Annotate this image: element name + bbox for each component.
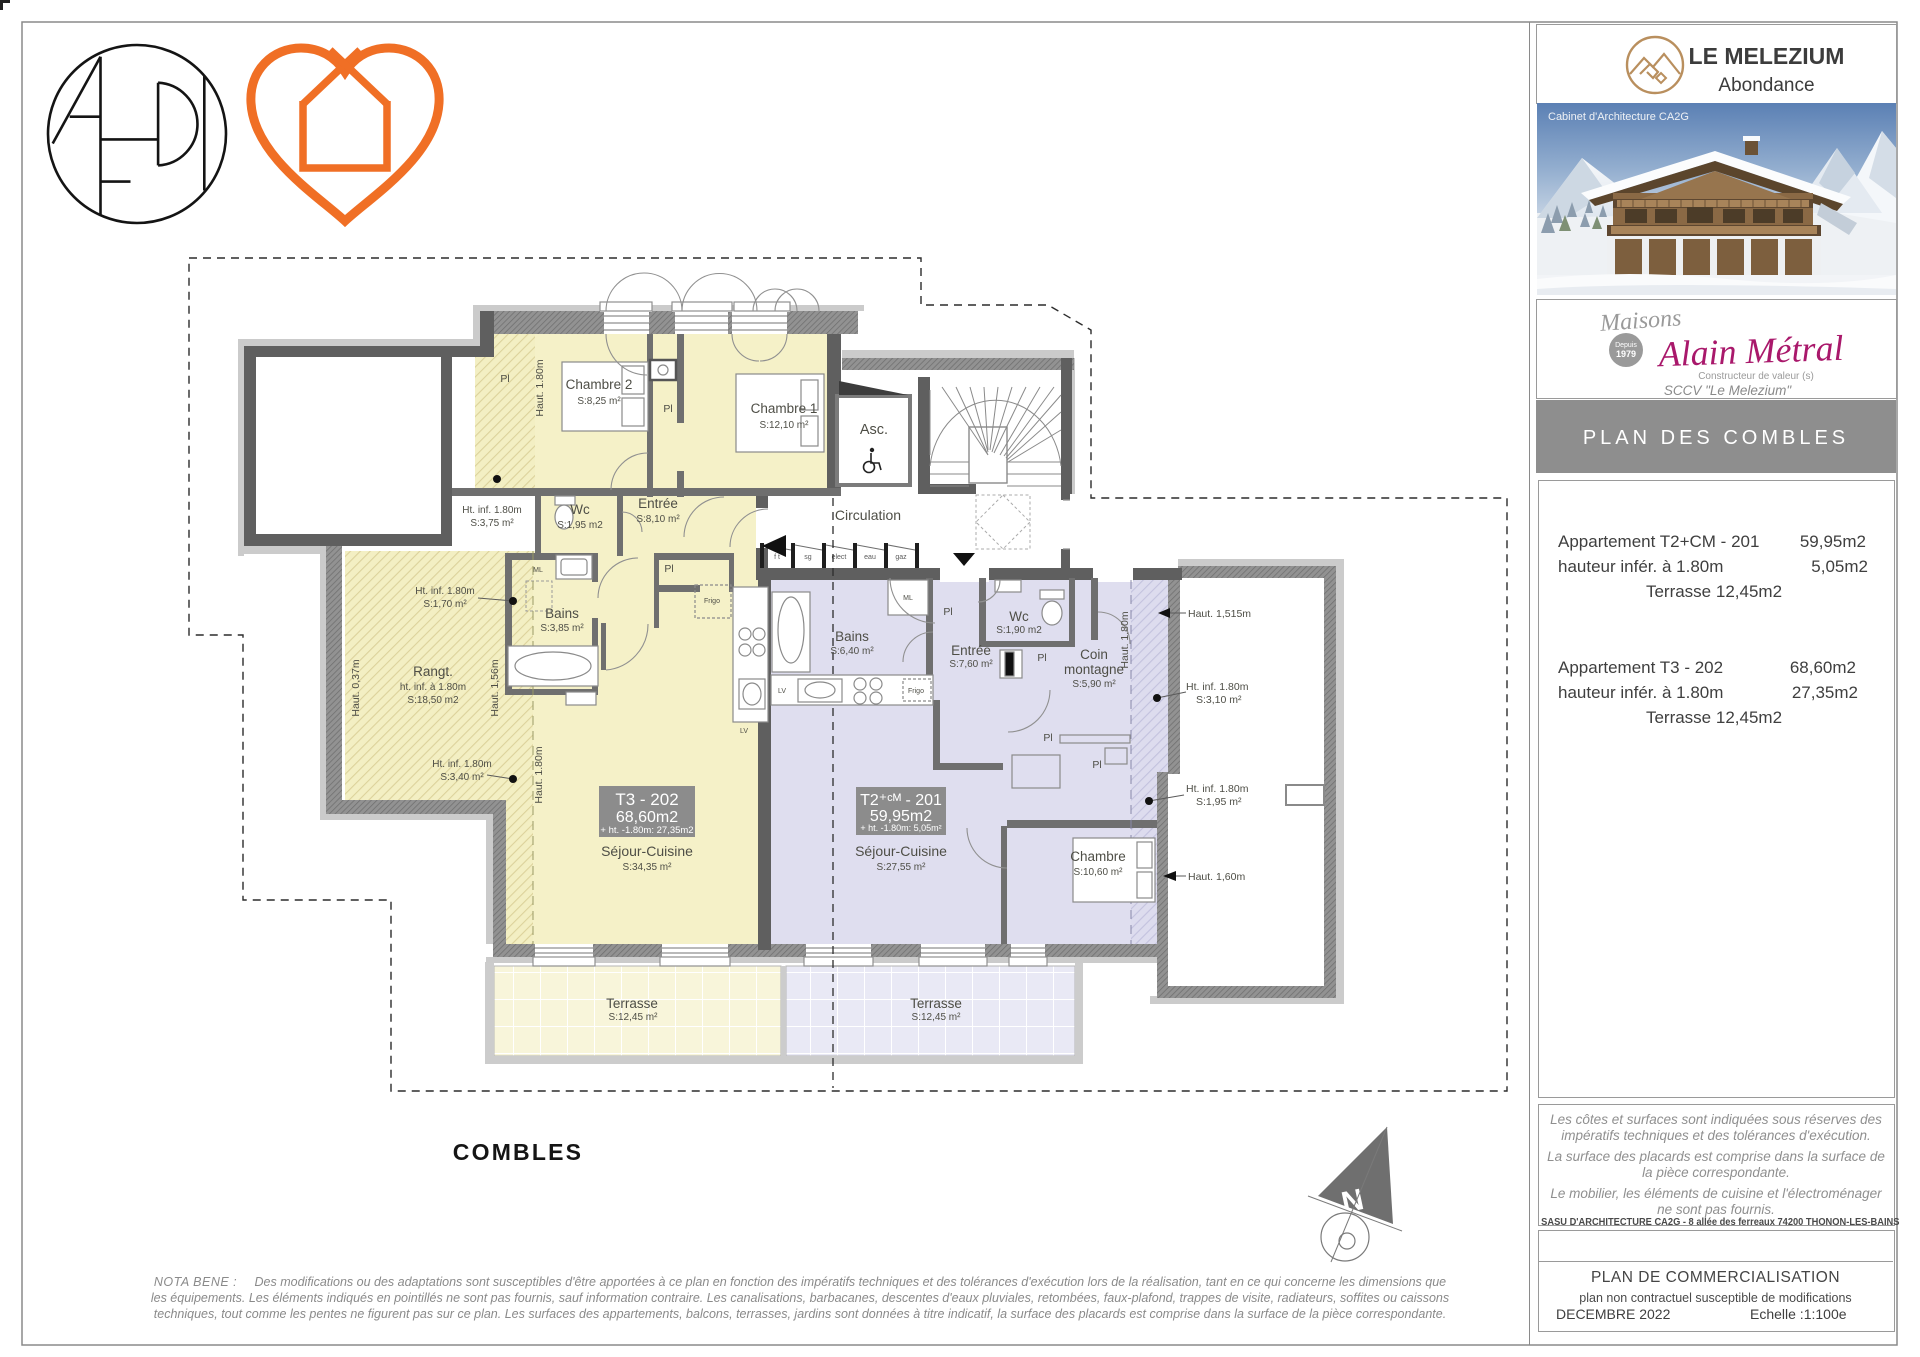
svg-text:Asc.: Asc.	[860, 422, 888, 438]
svg-text:elect: elect	[832, 554, 847, 561]
svg-text:S:12,45 m²: S:12,45 m²	[609, 1012, 659, 1023]
svg-text:Chambre 1: Chambre 1	[751, 401, 818, 416]
svg-text:Chambre: Chambre	[1070, 849, 1126, 864]
svg-text:Terrasse: Terrasse	[606, 996, 658, 1011]
svg-text:T2⁺ᶜᴹ - 201: T2⁺ᶜᴹ - 201	[860, 792, 942, 809]
svg-text:Entrée: Entrée	[638, 496, 678, 511]
svg-text:S:3,85 m²: S:3,85 m²	[540, 623, 584, 634]
svg-text:Haut. 0,37m: Haut. 0,37m	[350, 659, 362, 716]
svg-text:LV: LV	[740, 728, 748, 735]
svg-text:S:12,10 m²: S:12,10 m²	[760, 420, 810, 431]
svg-text:LV: LV	[778, 688, 786, 695]
svg-text:Circulation: Circulation	[835, 507, 901, 523]
svg-text:S:27,55 m²: S:27,55 m²	[877, 862, 927, 873]
svg-text:S:7,60 m²: S:7,60 m²	[949, 659, 993, 670]
svg-text:Haut. 1,56m: Haut. 1,56m	[489, 659, 501, 716]
svg-text:Frigo: Frigo	[704, 598, 720, 605]
svg-text:S:3,75 m²: S:3,75 m²	[470, 518, 514, 529]
svg-text:T3 - 202: T3 - 202	[615, 790, 678, 809]
svg-text:Cabinet d'Architecture CA2G: Cabinet d'Architecture CA2G	[1548, 111, 1689, 123]
svg-text:Pl: Pl	[1037, 652, 1046, 664]
svg-text:Pl: Pl	[1043, 732, 1052, 744]
svg-text:S:8,10 m²: S:8,10 m²	[636, 514, 680, 525]
svg-text:Wc: Wc	[1009, 609, 1029, 624]
svg-text:S:8,25 m²: S:8,25 m²	[577, 396, 621, 407]
svg-text:ht. inf. à 1.80m: ht. inf. à 1.80m	[400, 682, 466, 693]
svg-text:S:5,90 m²: S:5,90 m²	[1072, 679, 1116, 690]
svg-text:sg: sg	[804, 554, 812, 561]
svg-text:S:1,90 m2: S:1,90 m2	[996, 625, 1042, 636]
svg-text:Pl: Pl	[943, 606, 952, 618]
svg-text:Séjour-Cuisine: Séjour-Cuisine	[855, 843, 947, 859]
svg-text:+ ht. -1.80m: 27,35m2: + ht. -1.80m: 27,35m2	[600, 825, 693, 836]
svg-text:S:18,50 m2: S:18,50 m2	[407, 695, 459, 706]
svg-text:COMBLES: COMBLES	[453, 1139, 583, 1165]
svg-text:S:34,35 m²: S:34,35 m²	[623, 862, 673, 873]
svg-text:Haut. 1.80m: Haut. 1.80m	[1119, 611, 1131, 668]
svg-text:ML: ML	[903, 595, 913, 602]
svg-text:Entrée: Entrée	[951, 643, 991, 658]
svg-text:S:12,45 m²: S:12,45 m²	[912, 1012, 962, 1023]
svg-text:montagne: montagne	[1064, 662, 1124, 677]
svg-text:Rangt.: Rangt.	[413, 664, 453, 679]
svg-text:Bains: Bains	[545, 606, 579, 621]
svg-text:S:3,40 m²: S:3,40 m²	[440, 772, 484, 783]
svg-text:Ht. inf. 1.80m: Ht. inf. 1.80m	[415, 586, 474, 597]
svg-text:Coin: Coin	[1080, 647, 1108, 662]
svg-text:Wc: Wc	[570, 502, 590, 517]
svg-text:Terrasse: Terrasse	[910, 996, 962, 1011]
svg-text:Ht. inf. 1.80m: Ht. inf. 1.80m	[1186, 681, 1249, 693]
svg-text:S:3,10 m²: S:3,10 m²	[1196, 694, 1242, 706]
svg-text:f t: f t	[774, 554, 780, 561]
svg-text:Pl: Pl	[663, 403, 672, 415]
svg-text:S:1,95 m²: S:1,95 m²	[1196, 796, 1242, 808]
svg-text:Pl: Pl	[500, 373, 509, 385]
svg-text:gaz: gaz	[895, 554, 907, 561]
svg-text:68,60m2: 68,60m2	[616, 809, 678, 826]
svg-text:Bains: Bains	[835, 629, 869, 644]
svg-text:Haut. 1.80m: Haut. 1.80m	[534, 359, 546, 416]
svg-text:Frigo: Frigo	[908, 688, 924, 695]
svg-text:Ht. inf. 1.80m: Ht. inf. 1.80m	[1186, 783, 1249, 795]
svg-text:Ht. inf. 1.80m: Ht. inf. 1.80m	[462, 505, 521, 516]
svg-text:Ht. inf. 1.80m: Ht. inf. 1.80m	[432, 759, 491, 770]
svg-text:S:6,40 m²: S:6,40 m²	[830, 646, 874, 657]
svg-text:ML: ML	[533, 567, 543, 574]
svg-text:Haut. 1,60m: Haut. 1,60m	[1188, 871, 1245, 883]
svg-text:S:1,70 m²: S:1,70 m²	[423, 599, 467, 610]
svg-text:Haut. 1.80m: Haut. 1.80m	[533, 746, 545, 803]
svg-text:Haut. 1,515m: Haut. 1,515m	[1188, 608, 1251, 620]
svg-text:S:1,95 m2: S:1,95 m2	[557, 520, 603, 531]
svg-text:S:10,60 m²: S:10,60 m²	[1074, 867, 1124, 878]
svg-text:Chambre 2: Chambre 2	[566, 377, 633, 392]
svg-text:Pl: Pl	[664, 563, 673, 575]
svg-text:Pl: Pl	[1092, 759, 1101, 771]
svg-text:eau: eau	[864, 554, 876, 561]
svg-text:Séjour-Cuisine: Séjour-Cuisine	[601, 843, 693, 859]
svg-text:+ ht. -1.80m: 5,05m²: + ht. -1.80m: 5,05m²	[860, 823, 941, 833]
